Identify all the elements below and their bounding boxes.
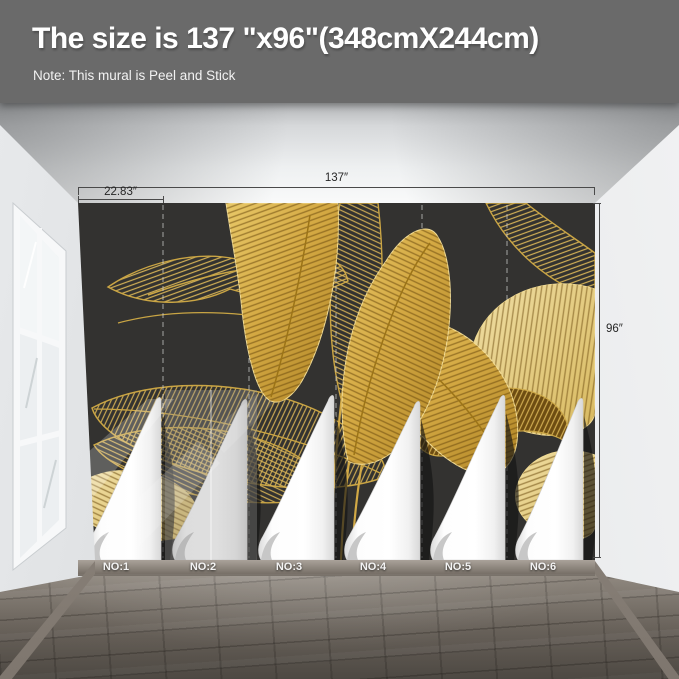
product-size-visualization: The size is 137 "x96"(348cmX244cm) Note:… [0, 0, 679, 679]
width-dimension-label: 137″ [78, 172, 595, 184]
header-banner: The size is 137 "x96"(348cmX244cm) Note:… [0, 0, 679, 103]
panel-label-4: NO:4 [343, 561, 403, 573]
panel-label-3: NO:3 [259, 561, 319, 573]
panel-width-dimension-line [78, 199, 163, 200]
panel-label-5: NO:5 [428, 561, 488, 573]
window [6, 198, 76, 588]
wood-floor [0, 558, 679, 679]
mural-artwork [78, 203, 595, 560]
room-scene: 137″ 22.83″ 96″ NO:1 NO:2 NO:3 NO:4 NO:5… [0, 103, 679, 679]
panel-width-dimension-label: 22.83″ [78, 186, 163, 198]
height-dimension-line [599, 203, 600, 557]
mural-wall [78, 203, 595, 560]
peel-and-stick-note: Note: This mural is Peel and Stick [33, 68, 235, 83]
size-title: The size is 137 "x96"(348cmX244cm) [32, 22, 539, 56]
panel-label-6: NO:6 [513, 561, 573, 573]
height-dimension-label: 96″ [606, 323, 623, 335]
panel-label-1: NO:1 [86, 561, 146, 573]
panel-label-2: NO:2 [173, 561, 233, 573]
